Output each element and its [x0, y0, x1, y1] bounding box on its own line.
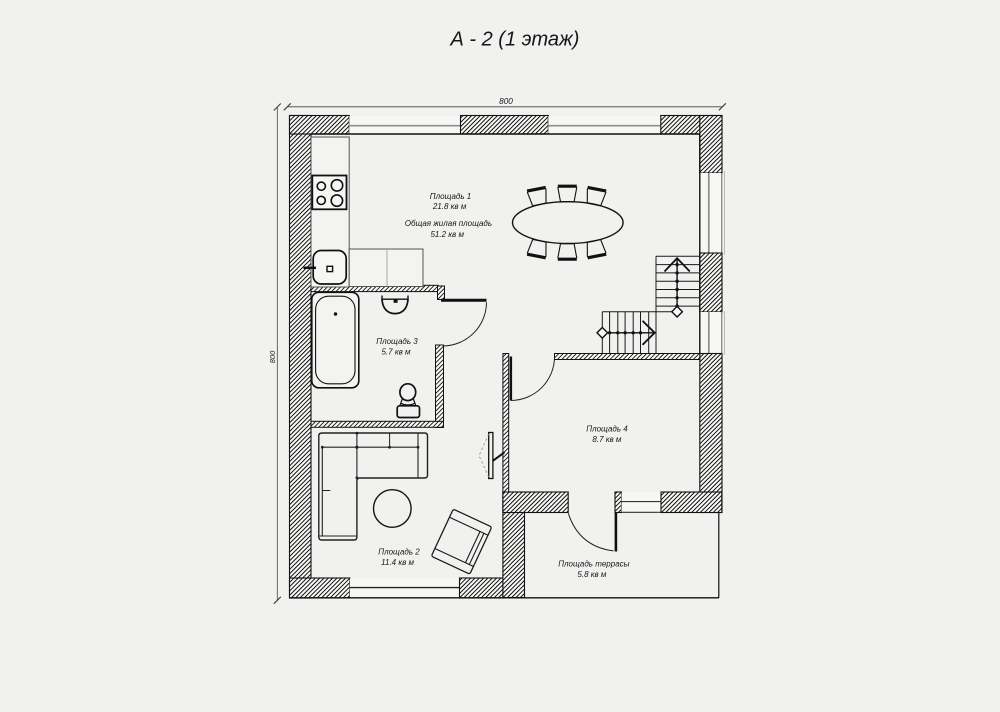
svg-text:Площадь 2: Площадь 2 [378, 548, 420, 557]
svg-text:Площадь 4: Площадь 4 [586, 425, 628, 434]
svg-text:А - 2 (1 этаж): А - 2 (1 этаж) [450, 29, 580, 51]
svg-text:Площадь 3: Площадь 3 [376, 337, 418, 346]
svg-text:5.7 кв м: 5.7 кв м [381, 348, 411, 357]
svg-text:Площадь 1: Площадь 1 [430, 192, 471, 201]
svg-text:21.8 кв м: 21.8 кв м [432, 202, 467, 211]
svg-text:800: 800 [268, 350, 277, 363]
svg-text:51.2 кв м: 51.2 кв м [430, 230, 464, 239]
svg-text:Общая жилая площадь: Общая жилая площадь [405, 219, 492, 228]
svg-text:5.8 кв м: 5.8 кв м [577, 570, 607, 579]
svg-text:800: 800 [499, 97, 513, 106]
svg-text:8.7 кв м: 8.7 кв м [592, 435, 622, 444]
svg-text:Площадь террасы: Площадь террасы [558, 560, 629, 569]
svg-text:11.4 кв м: 11.4 кв м [381, 558, 414, 567]
